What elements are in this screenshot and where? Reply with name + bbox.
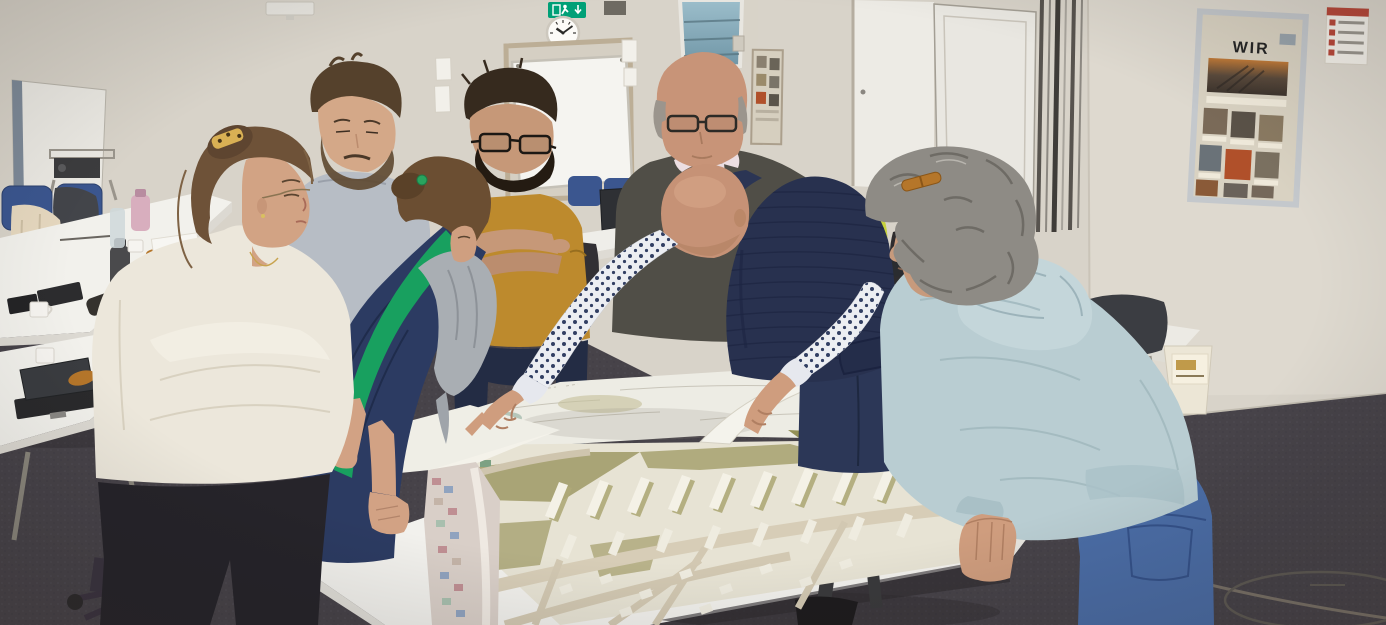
photo-vignette [0,0,1386,625]
photo-meeting-room: WIR [0,0,1386,625]
scene-canvas: WIR [0,0,1386,625]
